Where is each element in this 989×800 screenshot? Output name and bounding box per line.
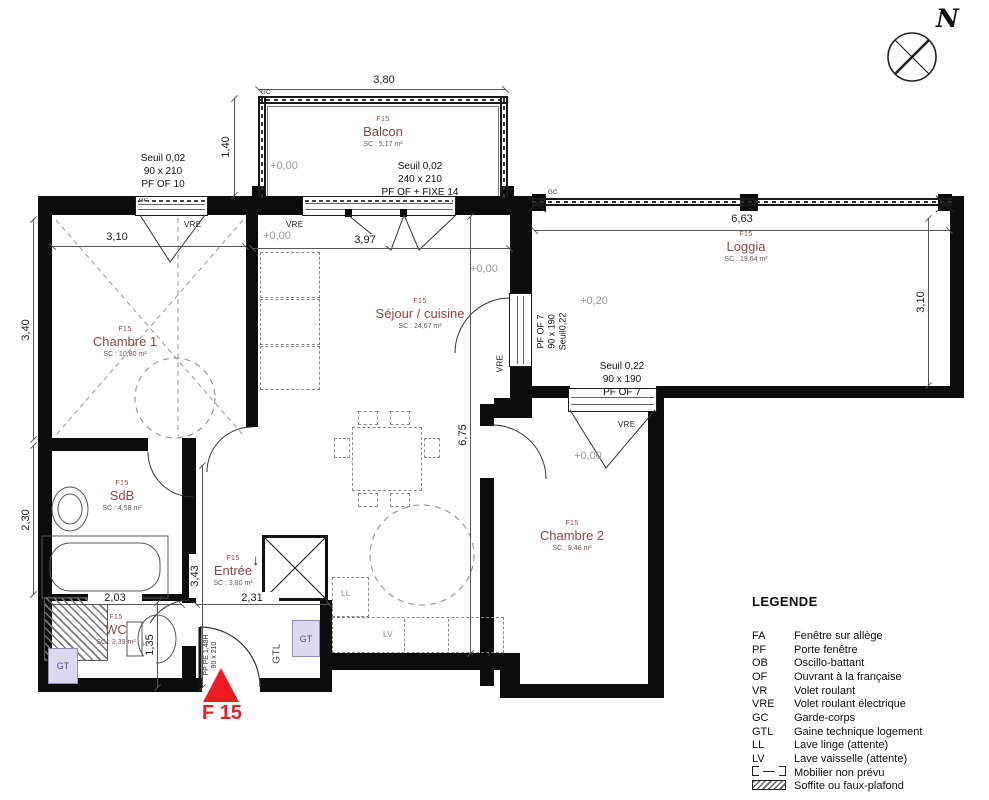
loggia-door-window bbox=[509, 293, 532, 367]
vre-tag: VRE bbox=[184, 220, 201, 229]
ll-tag: LL bbox=[341, 589, 351, 598]
dim-sdb-height: 2,30 bbox=[20, 498, 32, 542]
wall-segment bbox=[494, 398, 532, 418]
dimension-line bbox=[928, 218, 929, 386]
room-label-sejour: F15 Séjour / cuisine SC : 24,67 m² bbox=[360, 298, 480, 331]
dimension-line bbox=[234, 98, 235, 196]
level-sejour: +0,00 bbox=[255, 230, 299, 242]
kitchen-unit-dashed bbox=[260, 346, 320, 390]
balcony-railing bbox=[258, 96, 266, 198]
wall-segment bbox=[500, 684, 664, 698]
window-mullion bbox=[345, 209, 352, 217]
vre-tag: VRE bbox=[286, 220, 303, 229]
dimension-line bbox=[33, 219, 34, 440]
chair-dashed bbox=[390, 411, 410, 425]
level-balcon: +0,00 bbox=[262, 160, 306, 172]
legend-item: LVLave vaisselle (attente) bbox=[752, 752, 986, 766]
balcony-railing bbox=[258, 96, 508, 104]
vre-tag: VRE bbox=[618, 420, 635, 429]
legend: LEGENDE FAFenêtre sur allège PFPorte fen… bbox=[752, 594, 986, 793]
annotation-chambre2-window: Seuil 0,22 90 x 190 PF OF 7 bbox=[572, 360, 672, 399]
chair-dashed bbox=[424, 438, 440, 458]
level-loggia: +0,20 bbox=[572, 295, 616, 307]
wall-segment bbox=[182, 646, 196, 692]
soffite-symbol bbox=[752, 780, 794, 793]
dimension-line bbox=[52, 604, 182, 605]
legend-item: FAFenêtre sur allège bbox=[752, 629, 986, 643]
legend-item: VREVolet roulant électrique bbox=[752, 697, 986, 711]
wall-segment bbox=[320, 600, 332, 682]
wall-segment bbox=[208, 196, 302, 215]
chair-dashed bbox=[390, 493, 410, 507]
dim-balcon-width: 3,80 bbox=[357, 74, 411, 86]
wall-segment bbox=[480, 404, 494, 426]
dim-loggia-width: 6,63 bbox=[715, 213, 769, 225]
chair-dashed bbox=[334, 438, 350, 458]
legend-item: Mobilier non prévu bbox=[752, 766, 986, 780]
level-sejour: +0,00 bbox=[462, 263, 506, 275]
kitchen-unit-dashed bbox=[260, 252, 320, 298]
window-gc-dashes bbox=[305, 199, 453, 203]
legend-item: VRVolet roulant bbox=[752, 684, 986, 698]
chair-dashed bbox=[358, 493, 378, 507]
room-label-loggia: F15 Loggia SC : 19,64 m² bbox=[686, 231, 806, 264]
legend-item: OFOuvrant à la française bbox=[752, 670, 986, 684]
wall-segment bbox=[950, 196, 964, 398]
dim-sejour-height: 6,75 bbox=[457, 413, 469, 457]
wall-segment bbox=[530, 386, 570, 398]
wall-segment bbox=[480, 478, 494, 686]
dimension-line bbox=[252, 248, 510, 249]
legend-item: OBOscillo-battant bbox=[752, 656, 986, 670]
gt-label: GT bbox=[57, 661, 70, 671]
room-label-wc: F15 WC SC : 2,39 m² bbox=[66, 614, 166, 647]
level-chambre2: +0,00 bbox=[566, 450, 610, 462]
dimension-line bbox=[258, 89, 506, 90]
dining-table-dashed bbox=[352, 427, 422, 491]
gt-box: GT bbox=[292, 620, 320, 657]
room-label-sdb: F15 SdB SC : 4,58 m² bbox=[72, 480, 172, 513]
lv-tag: LV bbox=[383, 630, 393, 639]
window-mullion bbox=[400, 209, 407, 217]
counter-divider bbox=[448, 619, 449, 651]
unit-marker-label: F 15 bbox=[196, 702, 248, 725]
gt-box: GT bbox=[48, 648, 78, 684]
legend-item: GTLGaine technique logement bbox=[752, 725, 986, 739]
legend-item: Soffite ou faux-plafond bbox=[752, 780, 986, 794]
dimension-line bbox=[33, 445, 34, 595]
kitchen-unit-dashed bbox=[260, 299, 320, 345]
chair-dashed bbox=[358, 411, 378, 425]
gc-tag: GC bbox=[261, 90, 271, 96]
loggia-railing bbox=[532, 198, 952, 206]
dim-sdb-width: 2,03 bbox=[88, 592, 142, 604]
room-label-balcon: F15 Balcon SC : 5,17 m² bbox=[333, 116, 433, 149]
gt-label: GT bbox=[300, 634, 313, 644]
wall-segment bbox=[38, 196, 135, 215]
dim-entree-width: 2,31 bbox=[225, 592, 279, 604]
dimension-line bbox=[52, 246, 246, 247]
dim-balcon-depth: 1,40 bbox=[220, 125, 232, 169]
balcony-railing bbox=[500, 96, 508, 198]
room-label-chambre1: F15 Chambre 1 SC : 10,80 m² bbox=[65, 326, 185, 359]
legend-item: PFPorte fenêtre bbox=[752, 643, 986, 657]
wall-segment bbox=[38, 438, 148, 451]
dim-sejour-width: 3,97 bbox=[338, 234, 392, 246]
legend-item: GCGarde-corps bbox=[752, 711, 986, 725]
room-label-entree: F15 Entrée SC : 3,80 m² bbox=[183, 555, 283, 588]
dim-loggia-height: 3,10 bbox=[915, 280, 927, 324]
wall-segment bbox=[510, 196, 532, 295]
mobilier-symbol bbox=[752, 766, 794, 779]
gc-tag: GC bbox=[139, 198, 149, 204]
kitchen-counter-dashed bbox=[332, 617, 504, 653]
wall-segment bbox=[656, 386, 952, 398]
gtl-label: GTL bbox=[272, 637, 283, 671]
wall-segment bbox=[648, 396, 664, 698]
annotation-loggia-door: PF OF 7 90 x 190 Seuil0,22 bbox=[536, 297, 569, 367]
counter-divider bbox=[404, 619, 405, 651]
gc-tag: GC bbox=[548, 190, 558, 196]
dimension-line bbox=[470, 216, 471, 654]
legend-title: LEGENDE bbox=[752, 594, 986, 609]
dim-chambre1-width: 3,10 bbox=[90, 231, 144, 243]
annotation-chambre1-window: Seuil 0,02 90 x 210 PF OF 10 bbox=[123, 152, 203, 191]
vre-tag: VRE bbox=[496, 349, 505, 379]
floor-plan: N GT GT GTL 3,80 1,40 3,10 3,40 2,30 3,9… bbox=[0, 0, 989, 800]
unit-marker-triangle bbox=[203, 668, 239, 702]
dimension-line bbox=[196, 604, 330, 605]
room-label-chambre2: F15 Chambre 2 SC : 9,48 m² bbox=[512, 520, 632, 553]
dim-chambre1-height: 3,40 bbox=[20, 308, 32, 352]
annotation-balcony-door: Seuil 0,02 240 x 210 PF OF + FIXE 14 bbox=[370, 160, 470, 199]
north-arrow-label: N bbox=[936, 4, 959, 33]
legend-item: LLLave linge (attente) bbox=[752, 739, 986, 753]
